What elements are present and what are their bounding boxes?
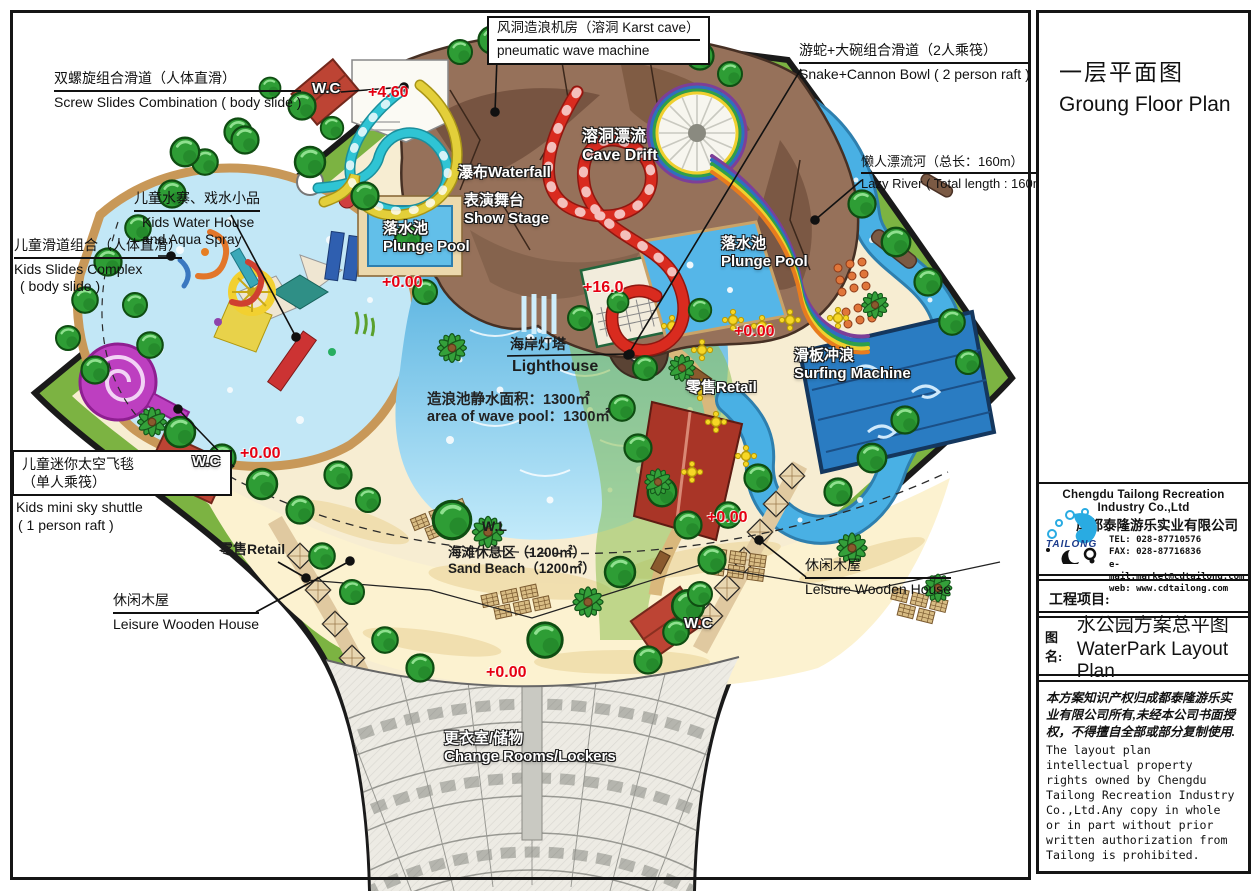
cannon-bowl: [648, 84, 746, 182]
label-cave-drift: 溶洞漂流 Cave Drift: [582, 128, 658, 166]
drawing-name-label: 图名:: [1045, 627, 1071, 665]
sheet-title-zh: 一层平面图: [1059, 53, 1248, 87]
callout-screw-slides: 双螺旋组合滑道（人体直滑） Screw Slides Combination (…: [54, 70, 301, 111]
callout-snake-cannon: 游蛇+大碗组合滑道（2人乘筏） Snake+Cannon Bowl ( 2 pe…: [799, 42, 1030, 83]
copyright-zh: 本方案知识产权归成都泰隆游乐实业有限公司所有,未经本公司书面授权，不得擅自全部或…: [1046, 690, 1241, 740]
label-cave-drift-en: Cave Drift: [582, 147, 658, 164]
callout-leisure-house-left-zh: 休闲木屋: [113, 592, 259, 614]
logo-wave-icon: [1062, 550, 1079, 564]
elevation-marker-000-b: +0.00: [240, 445, 280, 464]
elevation-marker-000-c: +0.00: [734, 323, 774, 342]
callout-kids-sky-shuttle-zh2: （单人乘筏）: [22, 473, 222, 491]
label-show-stage-en: Show Stage: [464, 210, 549, 227]
company-email: e-mail:market@cdtailong.com: [1109, 559, 1244, 583]
label-retail-left: 零售Retail: [219, 541, 285, 558]
company-block: Chengdu Tailong Recreation Industry Co.,…: [1039, 484, 1248, 576]
label-plunge-pool-right-en: Plunge Pool: [721, 253, 808, 270]
tailong-logo: TAILONG: [1044, 506, 1104, 564]
callout-kids-water-house-zh: 儿童水寨、戏水小品: [134, 190, 260, 212]
elevation-marker-160: +16.0: [583, 279, 623, 298]
callout-kids-slides-complex-en2: ( body slide ): [14, 278, 182, 296]
label-wave-pool-area-zh: 造浪池静水面积：1300㎡: [427, 392, 590, 408]
label-plunge-pool-right: 落水池 Plunge Pool: [721, 235, 808, 270]
label-surfing-machine-en: Surfing Machine: [794, 365, 911, 382]
callout-leisure-house-right: 休闲木屋 Leisure Wooden House: [805, 557, 951, 598]
elevation-marker-000-a: +0.00: [382, 274, 422, 293]
label-sand-beach: 海滩休息区（1200㎡） Sand Beach（1200㎡）: [448, 545, 596, 577]
label-plunge-pool-left: 落水池 Plunge Pool: [383, 220, 470, 255]
label-lighthouse-en: Lighthouse: [512, 358, 598, 377]
company-fax: FAX: 028-87716836: [1109, 546, 1244, 558]
callout-snake-cannon-zh: 游蛇+大碗组合滑道（2人乘筏）: [799, 42, 1030, 64]
label-wave-pool-area: 造浪池静水面积：1300㎡ area of wave pool：1300㎡: [427, 392, 610, 426]
label-water-line: W.L: [482, 518, 507, 535]
label-plunge-pool-right-zh: 落水池: [721, 235, 766, 252]
drawing-title-en: WaterPark Layout Plan: [1077, 639, 1242, 683]
elevation-marker-000-d: +0.00: [707, 509, 747, 528]
callout-screw-slides-zh: 双螺旋组合滑道（人体直滑）: [54, 70, 301, 92]
label-show-stage-zh: 表演舞台: [464, 192, 524, 209]
drawing-name-row: 图名: 水公园方案总平图 WaterPark Layout Plan: [1039, 616, 1248, 676]
elevation-marker-000-e: +0.00: [486, 664, 526, 683]
elevation-marker-460: +4.60: [368, 84, 408, 103]
label-surfing-machine-zh: 滑板冲浪: [794, 347, 854, 364]
label-wc-topleft: W.C: [312, 80, 340, 98]
label-change-rooms-zh: 更衣室/储物: [444, 730, 523, 747]
title-block: 一层平面图 Groung Floor Plan Chengdu Tailong …: [1036, 10, 1251, 874]
company-tel: TEL: 028-87710576: [1109, 534, 1244, 546]
callout-kids-slides-complex: 儿童滑道组合（人体直滑） Kids Slides Complex ( body …: [14, 237, 182, 296]
callout-kids-sky-shuttle-en2: ( 1 person raft ): [12, 517, 232, 535]
drawing-sheet: 风洞造浪机房（溶洞 Karst cave） pneumatic wave mac…: [0, 0, 1260, 891]
callout-leisure-house-right-zh: 休闲木屋: [805, 557, 951, 579]
label-wave-pool-area-en: area of wave pool：1300㎡: [427, 409, 610, 425]
copyright-en: The layout plan intellectual property ri…: [1046, 743, 1241, 864]
callout-karst-cave-en: pneumatic wave machine: [497, 43, 649, 58]
drawing-title-zh: 水公园方案总平图: [1077, 610, 1242, 637]
drawing-title: 水公园方案总平图 WaterPark Layout Plan: [1077, 610, 1242, 683]
callout-leisure-house-right-en: Leisure Wooden House: [805, 581, 951, 597]
label-wc-bottomright: W.C: [684, 615, 712, 633]
label-change-rooms-en: Change Rooms/Lockers: [444, 748, 616, 765]
company-contacts: TEL: 028-87710576 FAX: 028-87716836 e-ma…: [1109, 534, 1244, 595]
label-sand-beach-en: Sand Beach（1200㎡）: [448, 561, 596, 576]
label-plunge-pool-left-en: Plunge Pool: [383, 238, 470, 255]
label-lighthouse-zh: 海岸灯塔: [510, 336, 566, 353]
callout-leisure-house-left-en: Leisure Wooden House: [113, 616, 259, 632]
label-cave-drift-zh: 溶洞漂流: [582, 128, 646, 145]
callout-karst-cave-zh: 风洞造浪机房（溶洞 Karst cave）: [497, 20, 700, 41]
callout-lazy-river-zh: 懒人漂流河（总长：160m）: [861, 154, 1052, 174]
label-retail-right: 零售Retail: [686, 379, 757, 397]
sheet-title: 一层平面图 Groung Floor Plan: [1039, 13, 1248, 484]
company-web: web: www.cdtailong.com: [1109, 583, 1244, 595]
label-plunge-pool-left-zh: 落水池: [383, 220, 428, 237]
callout-leisure-house-left: 休闲木屋 Leisure Wooden House: [113, 592, 259, 633]
label-show-stage: 表演舞台 Show Stage: [464, 192, 549, 227]
callout-karst-cave: 风洞造浪机房（溶洞 Karst cave） pneumatic wave mac…: [487, 16, 710, 65]
callout-snake-cannon-en: Snake+Cannon Bowl ( 2 person raft ): [799, 66, 1030, 82]
callout-kids-slides-complex-zh: 儿童滑道组合（人体直滑）: [14, 237, 182, 259]
label-surfing-machine: 滑板冲浪 Surfing Machine: [794, 347, 911, 382]
label-waterfall: 瀑布Waterfall: [458, 164, 551, 182]
sheet-title-en: Groung Floor Plan: [1059, 93, 1248, 117]
label-wc-midleft: W.C: [192, 453, 220, 471]
callout-lazy-river: 懒人漂流河（总长：160m） Lazy River ( Total length…: [861, 154, 1052, 193]
callout-screw-slides-en: Screw Slides Combination ( body slide ): [54, 94, 301, 110]
callout-kids-sky-shuttle-en1: Kids mini sky shuttle: [12, 499, 232, 517]
label-sand-beach-zh: 海滩休息区（1200㎡）: [448, 545, 586, 560]
copyright-block: 本方案知识产权归成都泰隆游乐实业有限公司所有,未经本公司书面授权，不得擅自全部或…: [1039, 680, 1248, 871]
callout-kids-slides-complex-en1: Kids Slides Complex: [14, 261, 182, 279]
callout-kids-water-house-en1: Kids Water House: [134, 214, 260, 232]
callout-lazy-river-en: Lazy River ( Total length : 160m ): [861, 176, 1052, 191]
label-change-rooms: 更衣室/储物 Change Rooms/Lockers: [444, 730, 616, 765]
